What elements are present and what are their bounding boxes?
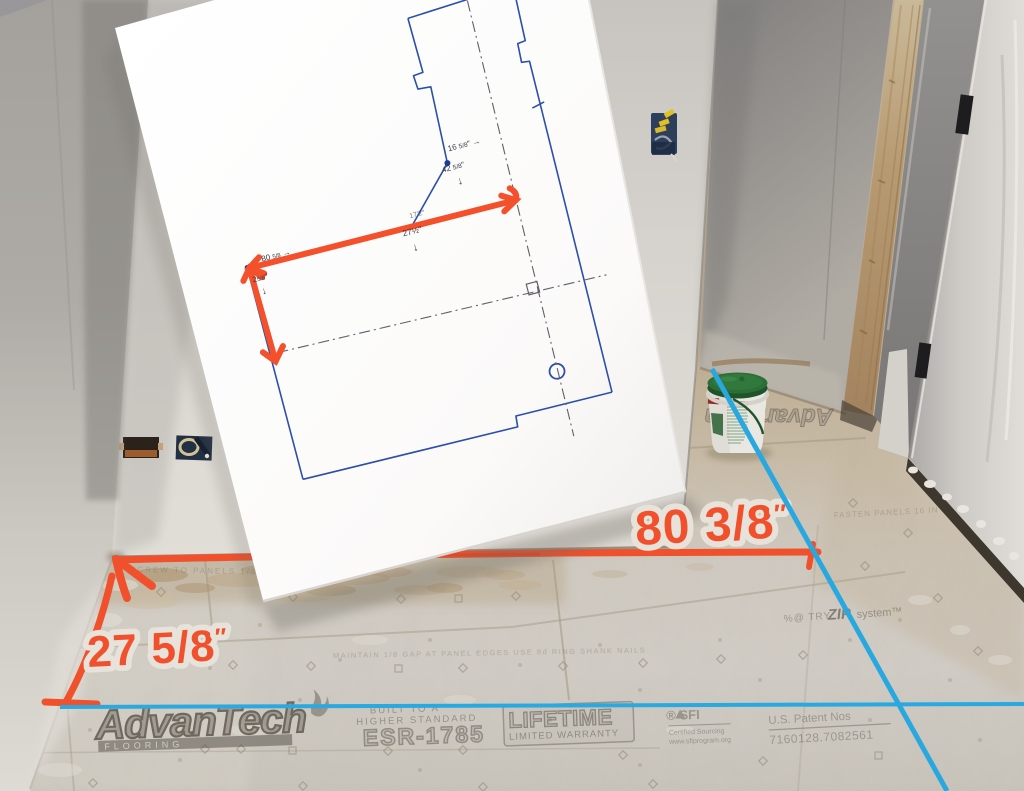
svg-text:27 5/8″: 27 5/8″: [86, 621, 229, 677]
svg-text:80 3/8″: 80 3/8″: [634, 495, 789, 556]
